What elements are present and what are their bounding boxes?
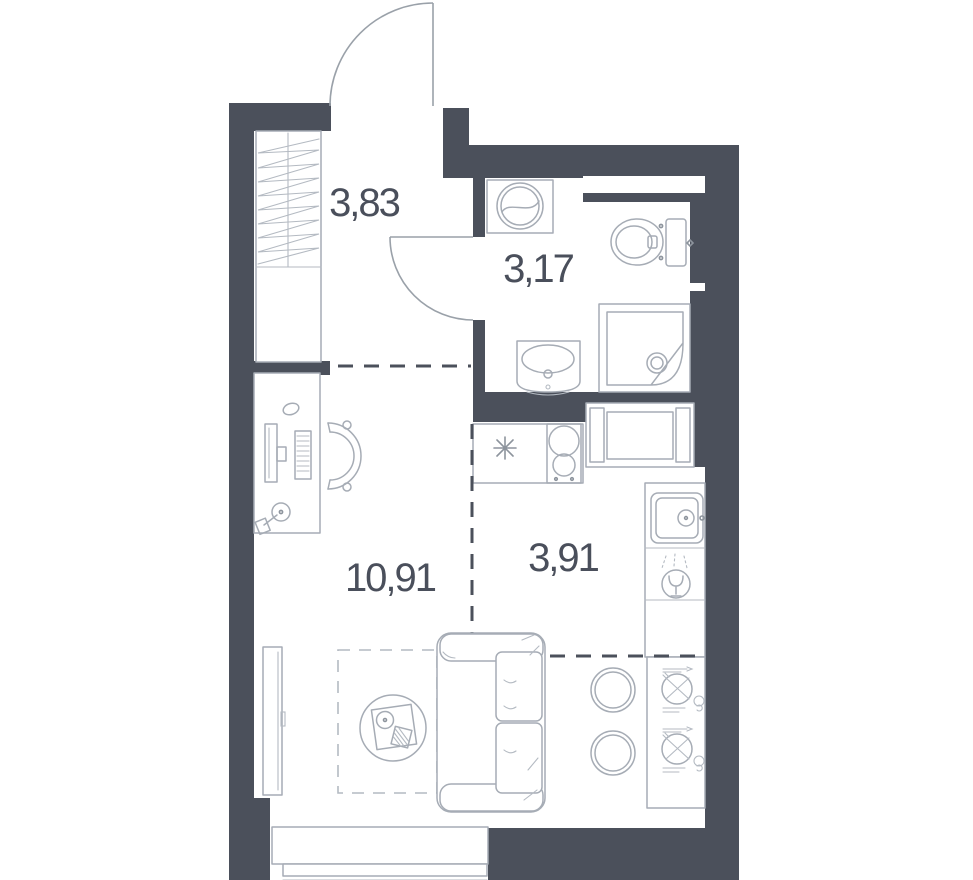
toilet-bolt-top <box>659 224 662 227</box>
toilet-bolt-bottom <box>659 256 662 259</box>
window-icon <box>272 827 488 880</box>
asterisk-lines <box>494 437 516 459</box>
hallway-area-label: 3,83 <box>329 181 400 225</box>
wall-bathroom-left-lower <box>473 320 485 392</box>
toilet-tank <box>666 219 686 266</box>
floor-plan-canvas: 3,83 3 <box>0 0 973 880</box>
living-room-area-label: 10,91 <box>345 556 436 600</box>
sofa-icon <box>437 633 545 812</box>
desk-icon <box>254 373 320 534</box>
wall-bathroom-left-upper <box>473 178 485 237</box>
entry-door-swing-arc <box>330 3 433 106</box>
shower-icon <box>599 304 690 392</box>
stool-2-inner <box>595 735 631 771</box>
coffee-table-icon <box>360 695 426 761</box>
washing-machine-icon <box>487 180 553 233</box>
tv-body <box>263 647 282 795</box>
counter-band <box>473 424 583 483</box>
wall-under-niche <box>583 193 705 202</box>
kitchen-area-label: 3,91 <box>528 536 599 580</box>
bathroom: 3,17 <box>487 180 693 395</box>
chair-armrest-bottom <box>343 483 351 491</box>
stool-icon-1 <box>591 668 635 712</box>
stool-1-outer <box>591 668 635 712</box>
wall-bottom-left-foot <box>229 798 270 880</box>
chair-armrest-top <box>343 421 351 429</box>
bathroom-area-label: 3,17 <box>503 247 574 291</box>
bathroom-sink-icon <box>517 341 580 395</box>
kitchen-top-counter <box>473 424 583 483</box>
stool-2-outer <box>591 731 635 775</box>
wall-right <box>705 145 739 865</box>
stool-icon-2 <box>591 731 635 775</box>
ventilation-niche <box>583 176 705 194</box>
wall-left <box>229 103 254 817</box>
floor-plan: 3,83 3 <box>0 0 973 880</box>
fridge-spot-asterisk-icon <box>494 437 516 459</box>
window-glazing <box>283 864 487 876</box>
wall-top-band <box>443 145 739 178</box>
wall-bathroom-right <box>690 194 705 392</box>
dining-table-icon <box>647 657 705 808</box>
office-chair-icon <box>328 421 361 491</box>
coffee-table-tray <box>371 704 416 749</box>
kitchen-side-counter <box>645 483 705 657</box>
sofa-cushion-top <box>496 652 542 721</box>
entry-door-icon <box>330 3 433 106</box>
toilet-icon <box>611 219 693 266</box>
window-opening <box>272 827 488 864</box>
bathroom-door-icon <box>390 237 473 320</box>
chair-back-ends <box>328 423 330 489</box>
wall-bottom-right-block <box>488 828 739 880</box>
hallway: 3,83 <box>256 131 471 366</box>
sofa-cushion-bottom <box>496 723 542 793</box>
desk-top <box>254 373 320 533</box>
wall-kitchen-stub <box>694 403 705 467</box>
shower-tray-outer <box>599 304 690 392</box>
built-in-appliance-icon <box>586 403 694 467</box>
chair-back-inner <box>330 432 354 480</box>
wardrobe-icon <box>256 131 321 362</box>
stool-1-inner <box>595 672 631 708</box>
tv-icon <box>263 647 285 795</box>
bathroom-door-swing-arc <box>390 237 473 320</box>
wall-notch <box>690 283 705 291</box>
